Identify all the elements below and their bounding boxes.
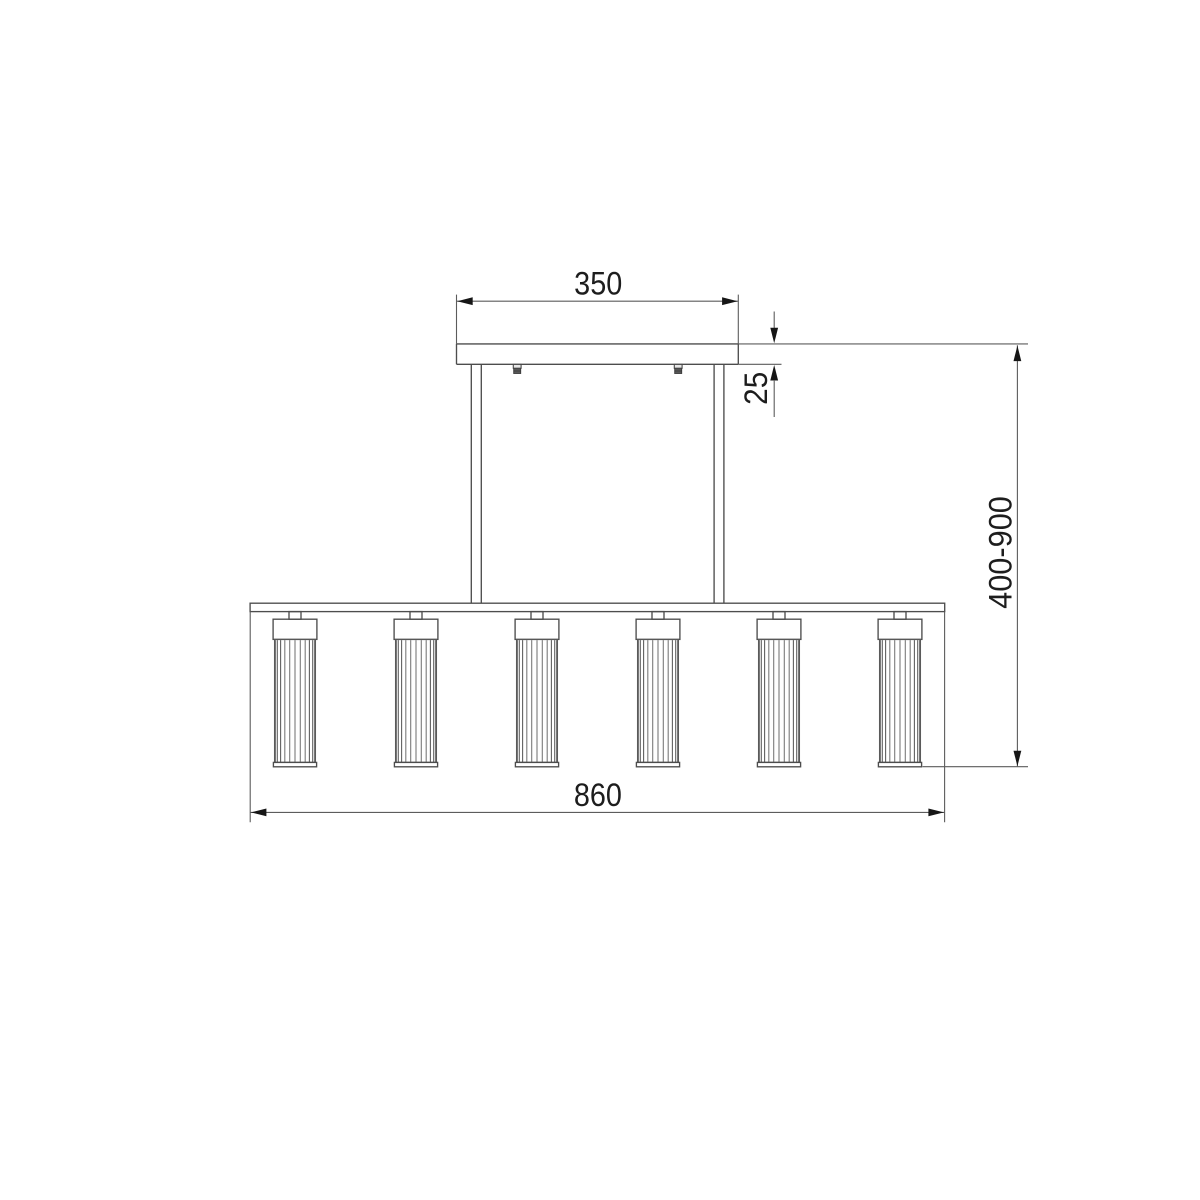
svg-text:350: 350 bbox=[574, 266, 622, 302]
svg-text:860: 860 bbox=[574, 778, 622, 814]
svg-text:25: 25 bbox=[738, 372, 774, 405]
svg-text:400-900: 400-900 bbox=[983, 496, 1019, 609]
